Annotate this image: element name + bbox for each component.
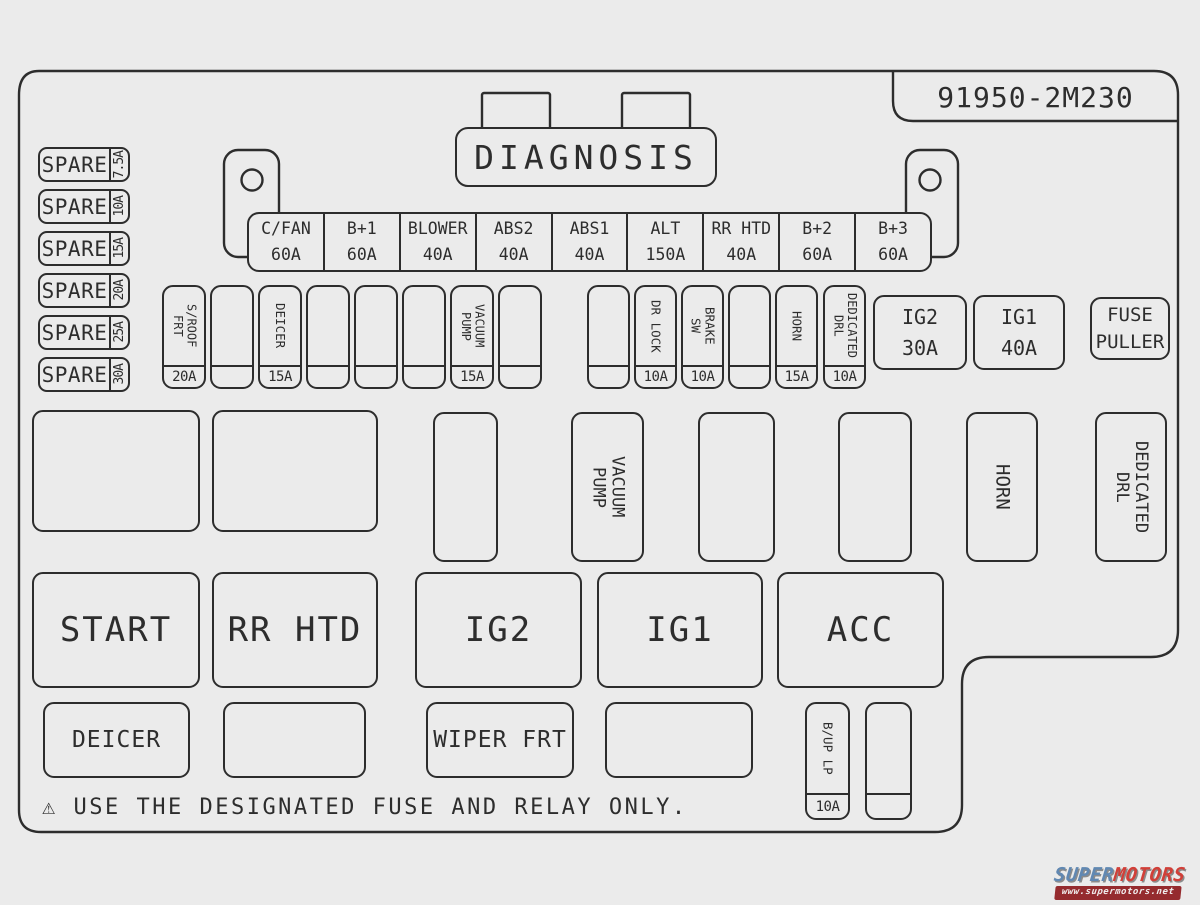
relay-name: C/FAN: [261, 216, 311, 242]
fuse-amp-section: 15A: [452, 365, 492, 387]
fuse-label: DEDICATED DRL: [831, 293, 858, 358]
relay-start: START: [32, 572, 200, 688]
relay-amp: 40A: [726, 242, 756, 268]
fuse-label-area: VACUUM PUMP: [452, 287, 492, 365]
fuse-amp-section: [308, 365, 348, 387]
fuse-blank: [210, 285, 254, 389]
fuse-dedicated-drl: DEDICATED DRL10A: [823, 285, 866, 389]
fuse-amp-section: [404, 365, 444, 387]
spare-fuse-label: SPARE: [40, 149, 109, 180]
relay-blank: [605, 702, 753, 778]
relay-name: ABS2: [494, 216, 534, 242]
relay-cell-b-1: B+160A: [323, 214, 399, 270]
fuse-amp-section: [212, 365, 252, 387]
relay-amp: 40A: [575, 242, 605, 268]
fuse-amp-section: [589, 365, 628, 387]
relay-amp: 40A: [499, 242, 529, 268]
spare-fuse: SPARE10A: [38, 189, 130, 224]
spare-fuse-label: SPARE: [40, 359, 109, 390]
relay-box-blank: [433, 412, 498, 562]
relay-name: B+2: [802, 216, 832, 242]
fuse-label: HORN: [790, 311, 804, 341]
warning-triangle-icon: ⚠: [42, 795, 58, 820]
spare-fuse: SPARE25A: [38, 315, 130, 350]
spare-fuse-label: SPARE: [40, 317, 109, 348]
fuse-label-area: [730, 287, 769, 365]
fuse-vacuum-pump: VACUUM PUMP15A: [450, 285, 494, 389]
fuse-deicer: DEICER15A: [258, 285, 302, 389]
spare-fuse-amp-section: 7.5A: [109, 149, 128, 180]
fuse-puller: FUSE PULLER: [1090, 297, 1170, 360]
fuse-label-area: DEICER: [260, 287, 300, 365]
spare-fuse-label: SPARE: [40, 191, 109, 222]
warning-note: ⚠ USE THE DESIGNATED FUSE AND RELAY ONLY…: [42, 795, 688, 820]
relay-amp: 60A: [802, 242, 832, 268]
relay-cell-rr-htd: RR HTD40A: [702, 214, 778, 270]
fuse-blank: [865, 702, 912, 820]
relay-amp: 60A: [878, 242, 908, 268]
fuse-name: IG2: [902, 302, 938, 333]
fuse-text: IG230A: [902, 302, 938, 364]
fuse-ig2: IG230A: [873, 295, 967, 370]
spare-fuse-amp-section: 25A: [109, 317, 128, 348]
spare-fuse: SPARE20A: [38, 273, 130, 308]
relay-name: RR HTD: [711, 216, 771, 242]
part-number: 91950-2M230: [893, 74, 1178, 120]
fuse-amp: 10A: [691, 369, 715, 385]
spare-fuse-amp-section: 20A: [109, 275, 128, 306]
fuse-label: B/UP LP: [821, 722, 835, 775]
fuse-amp-section: [500, 365, 540, 387]
fuse-blank: [306, 285, 350, 389]
fuse-label-area: HORN: [777, 287, 816, 365]
fuse-label-area: [867, 704, 910, 793]
fuse-blank: [354, 285, 398, 389]
relay-label: START: [60, 610, 172, 650]
relay-name: BLOWER: [408, 216, 468, 242]
fuse-label-area: BRAKE SW: [683, 287, 722, 365]
fuse-label: DR LOCK: [649, 300, 663, 353]
relay-cell-c-fan: C/FAN60A: [249, 214, 323, 270]
diagnosis-connector-tab-left: [482, 93, 550, 130]
fuse-dr-lock: DR LOCK10A: [634, 285, 677, 389]
fuse-box-diagram: 91950-2M230 DIAGNOSIS SPARE7.5ASPARE10AS…: [0, 0, 1200, 905]
relay-ig2: IG2: [415, 572, 582, 688]
watermark-super: SUPER: [1053, 864, 1115, 886]
fuse-amp-section: 10A: [636, 365, 675, 387]
fuse-amp: 10A: [644, 369, 668, 385]
fuse-b-up-lp: B/UP LP10A: [805, 702, 850, 820]
fuse-amp: 10A: [816, 799, 840, 815]
relay-box-dedicated-drl: DEDICATED DRL: [1095, 412, 1167, 562]
relay-name: ALT: [650, 216, 680, 242]
relay-cell-abs2: ABS240A: [475, 214, 551, 270]
relay-box-blank: [212, 410, 378, 532]
fuse-horn: HORN15A: [775, 285, 818, 389]
relay-cell-abs1: ABS140A: [551, 214, 627, 270]
fuse-label: VACUUM PUMP: [459, 304, 486, 347]
relay-box-blank: [698, 412, 775, 562]
fuse-blank: [587, 285, 630, 389]
fuse-label-area: [589, 287, 628, 365]
fuse-amp-section: 10A: [683, 365, 722, 387]
relay-name: B+1: [347, 216, 377, 242]
relay-label: RR HTD: [228, 610, 363, 650]
fuse-amp-section: 15A: [260, 365, 300, 387]
fuse-amp: 15A: [785, 369, 809, 385]
fuse-text: IG140A: [1001, 302, 1037, 364]
fuse-label-area: DR LOCK: [636, 287, 675, 365]
fuse-amp-section: [356, 365, 396, 387]
relay-name: ABS1: [570, 216, 610, 242]
spare-fuse-amp-section: 15A: [109, 233, 128, 264]
relay-amp: 40A: [423, 242, 453, 268]
spare-fuse-label: SPARE: [40, 233, 109, 264]
fuse-amp: 10A: [833, 369, 857, 385]
relay-name: B+3: [878, 216, 908, 242]
relay-label: IG1: [646, 610, 713, 650]
spare-fuse-amp: 15A: [112, 238, 127, 258]
relay-label: WIPER FRT: [433, 727, 567, 753]
relay-strip: C/FAN60AB+160ABLOWER40AABS240AABS140AALT…: [247, 212, 932, 272]
fuse-label-area: [212, 287, 252, 365]
spare-fuse: SPARE15A: [38, 231, 130, 266]
spare-fuse: SPARE7.5A: [38, 147, 130, 182]
fuse-label-area: DEDICATED DRL: [825, 287, 864, 365]
fuse-name: IG1: [1001, 302, 1037, 333]
spare-fuse-amp: 7.5A: [112, 151, 127, 178]
fuse-amp-section: 20A: [164, 365, 204, 387]
fuse-amp: 15A: [460, 369, 484, 385]
relay-box-label: VACUUM PUMP: [588, 456, 626, 517]
relay-ig1: IG1: [597, 572, 763, 688]
fuse-label-area: [356, 287, 396, 365]
fuse-amp: 20A: [172, 369, 196, 385]
fuse-ig1: IG140A: [973, 295, 1065, 370]
fuse-blank: [402, 285, 446, 389]
relay-amp: 60A: [347, 242, 377, 268]
relay-amp: 60A: [271, 242, 301, 268]
fuse-brake-sw: BRAKE SW10A: [681, 285, 724, 389]
fuse-label-area: [500, 287, 540, 365]
warning-text: USE THE DESIGNATED FUSE AND RELAY ONLY.: [74, 795, 688, 820]
spare-fuse-label: SPARE: [40, 275, 109, 306]
relay-box-vacuum-pump: VACUUM PUMP: [571, 412, 644, 562]
fuse-amp-section: [867, 793, 910, 818]
fuse-label-area: [308, 287, 348, 365]
fuse-label-area: S/ROOF FRT: [164, 287, 204, 365]
fuse-blank: [498, 285, 542, 389]
fuse-blank: [728, 285, 771, 389]
relay-cell-alt: ALT150A: [626, 214, 702, 270]
fuse-label: BRAKE SW: [689, 307, 717, 345]
spare-fuse-amp: 10A: [112, 196, 127, 216]
spare-fuse-amp: 30A: [112, 364, 127, 384]
spare-fuse-amp: 25A: [112, 322, 127, 342]
spare-fuse-amp-section: 30A: [109, 359, 128, 390]
fuse-amp: 30A: [902, 333, 938, 364]
relay-cell-blower: BLOWER40A: [399, 214, 475, 270]
relay-box-blank: [32, 410, 200, 532]
relay-cell-b-2: B+260A: [778, 214, 854, 270]
fuse-label-area: B/UP LP: [807, 704, 848, 793]
fuse-label-area: [404, 287, 444, 365]
diagnosis-connector: DIAGNOSIS: [455, 127, 717, 187]
relay-amp: 150A: [646, 242, 686, 268]
relay-blank: [223, 702, 366, 778]
relay-label: DEICER: [72, 727, 161, 753]
spare-fuse-amp: 20A: [112, 280, 127, 300]
fuse-amp-section: 10A: [807, 793, 848, 818]
relay-label: IG2: [465, 610, 532, 650]
relay-cell-b-3: B+360A: [854, 214, 930, 270]
watermark-logo: SUPERMOTORS: [1053, 866, 1186, 885]
watermark: SUPERMOTORS www.supermotors.net: [1041, 866, 1197, 900]
relay-box-label: DEDICATED DRL: [1112, 441, 1150, 533]
fuse-label: DEICER: [273, 303, 287, 348]
diagnosis-connector-tab-right: [622, 93, 690, 130]
relay-rr-htd: RR HTD: [212, 572, 378, 688]
fuse-amp: 15A: [268, 369, 292, 385]
fuse-amp: 40A: [1001, 333, 1037, 364]
relay-box-horn: HORN: [966, 412, 1038, 562]
relay-wiper-frt: WIPER FRT: [426, 702, 574, 778]
relay-box-label: HORN: [991, 464, 1012, 510]
fuse-amp-section: 10A: [825, 365, 864, 387]
fuse-amp-section: 15A: [777, 365, 816, 387]
fuse-s-roof-frt: S/ROOF FRT20A: [162, 285, 206, 389]
fuse-label: S/ROOF FRT: [171, 304, 198, 347]
watermark-motors: MOTORS: [1113, 864, 1187, 886]
relay-box-blank: [838, 412, 912, 562]
fuse-amp-section: [730, 365, 769, 387]
spare-fuse-amp-section: 10A: [109, 191, 128, 222]
relay-deicer: DEICER: [43, 702, 190, 778]
relay-label: ACC: [827, 610, 894, 650]
spare-fuse: SPARE30A: [38, 357, 130, 392]
relay-acc: ACC: [777, 572, 944, 688]
watermark-url: www.supermotors.net: [1054, 886, 1182, 900]
fuse-puller-label: FUSE PULLER: [1096, 302, 1165, 355]
